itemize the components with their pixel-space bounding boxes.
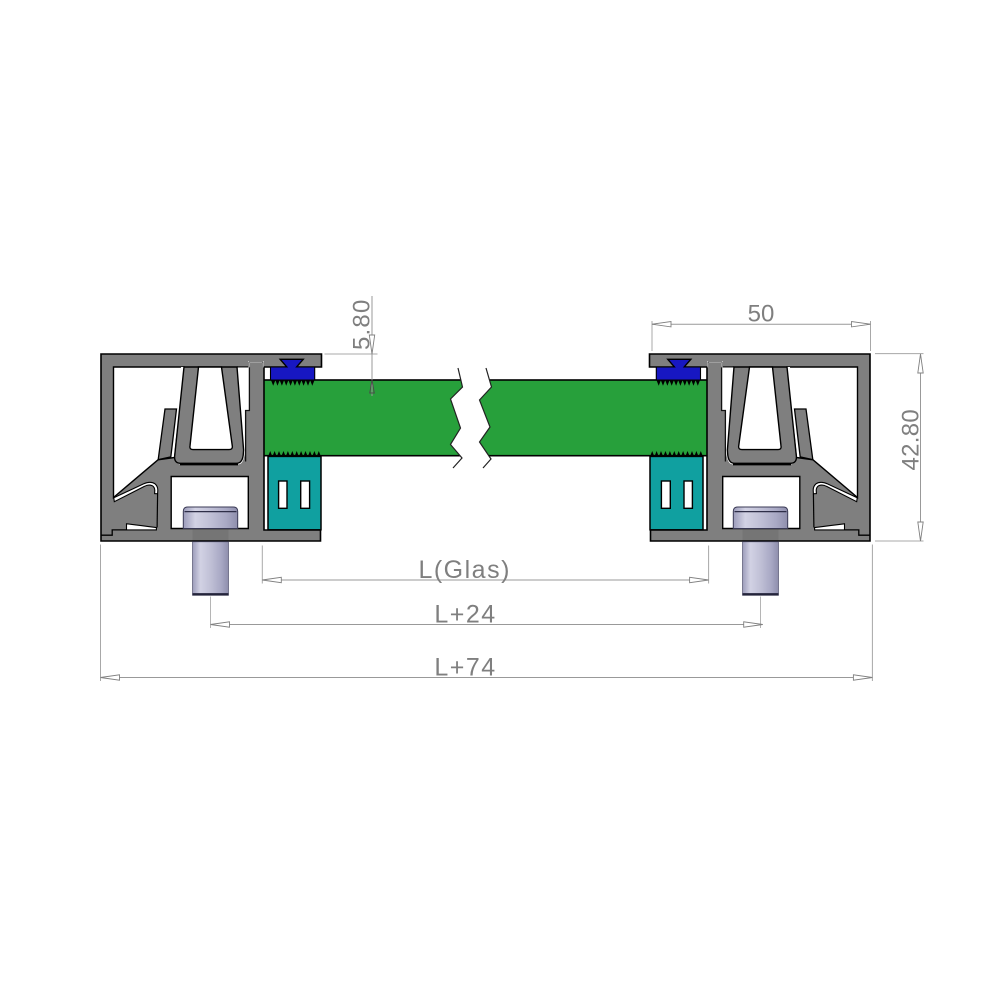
svg-text:5.80: 5.80: [349, 298, 376, 350]
svg-text:L+74: L+74: [434, 653, 496, 681]
svg-text:50: 50: [748, 301, 775, 328]
svg-text:L+24: L+24: [434, 600, 496, 628]
svg-text:42.80: 42.80: [898, 409, 925, 471]
svg-text:L(Glas): L(Glas): [418, 556, 510, 584]
